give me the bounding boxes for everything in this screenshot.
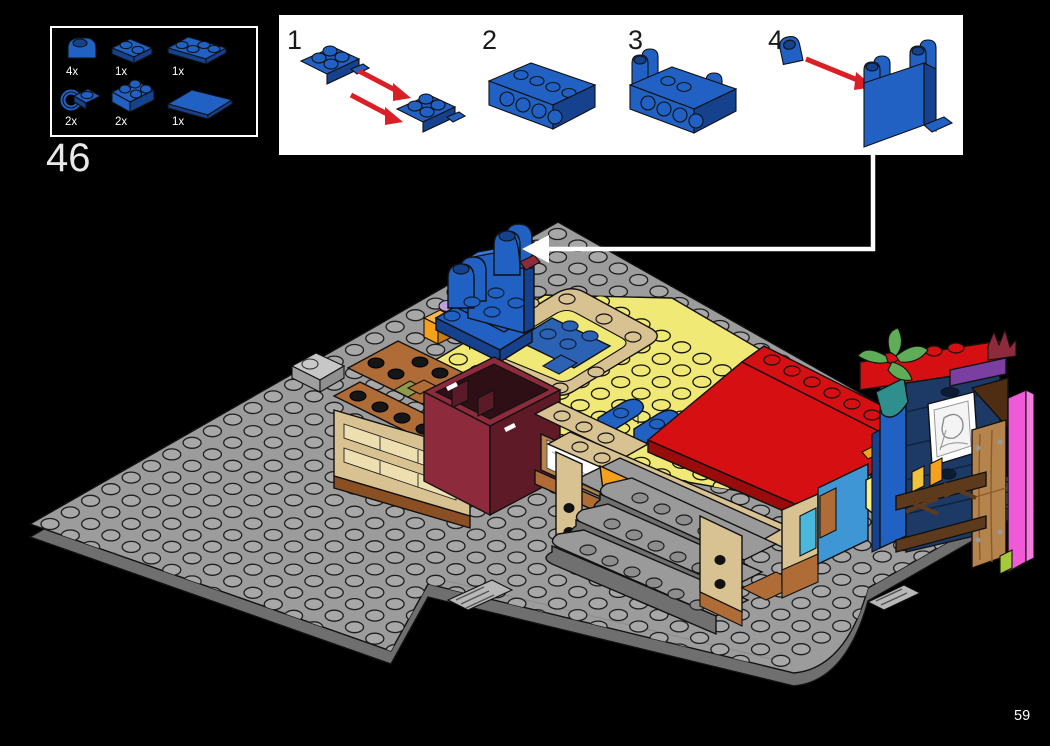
part-icon-plate-1x2 [108, 34, 156, 64]
part-qty: 1x [172, 116, 184, 128]
substep-number: 2 [482, 25, 497, 56]
part-qty: 1x [115, 66, 127, 78]
picture-frame [928, 392, 978, 466]
part-qty: 2x [115, 116, 127, 128]
living-room-wall [858, 328, 1034, 574]
bracket-piece [397, 94, 465, 132]
part-qty: 2x [65, 116, 77, 128]
bracket-piece [301, 46, 369, 84]
parts-callout-box: 4x 1x 1x 2x [50, 26, 258, 137]
part-icon-tile-2x4 [164, 84, 236, 120]
part-icon-bracket-2x2 [108, 78, 158, 118]
part-icon-slope-curved [62, 34, 104, 64]
part-qty: 1x [172, 66, 184, 78]
substep-3-art [624, 43, 766, 155]
instruction-page: 4x 1x 1x 2x [0, 0, 1050, 746]
dark-red-finials [988, 330, 1016, 360]
substep-panel: 1 2 [279, 15, 963, 155]
curved-cap-piece [778, 35, 803, 65]
wooden-door [972, 420, 1006, 568]
substep-2-art [479, 55, 624, 155]
part-qty: 4x [66, 66, 78, 78]
page-number: 59 [1014, 708, 1030, 724]
callout-arrow [522, 155, 873, 263]
step-number: 46 [46, 136, 91, 181]
substep-4-art [764, 31, 962, 157]
substep-1-art [295, 39, 475, 151]
part-icon-clip-plate [60, 82, 104, 116]
part-icon-plate-1x4 [164, 32, 230, 64]
